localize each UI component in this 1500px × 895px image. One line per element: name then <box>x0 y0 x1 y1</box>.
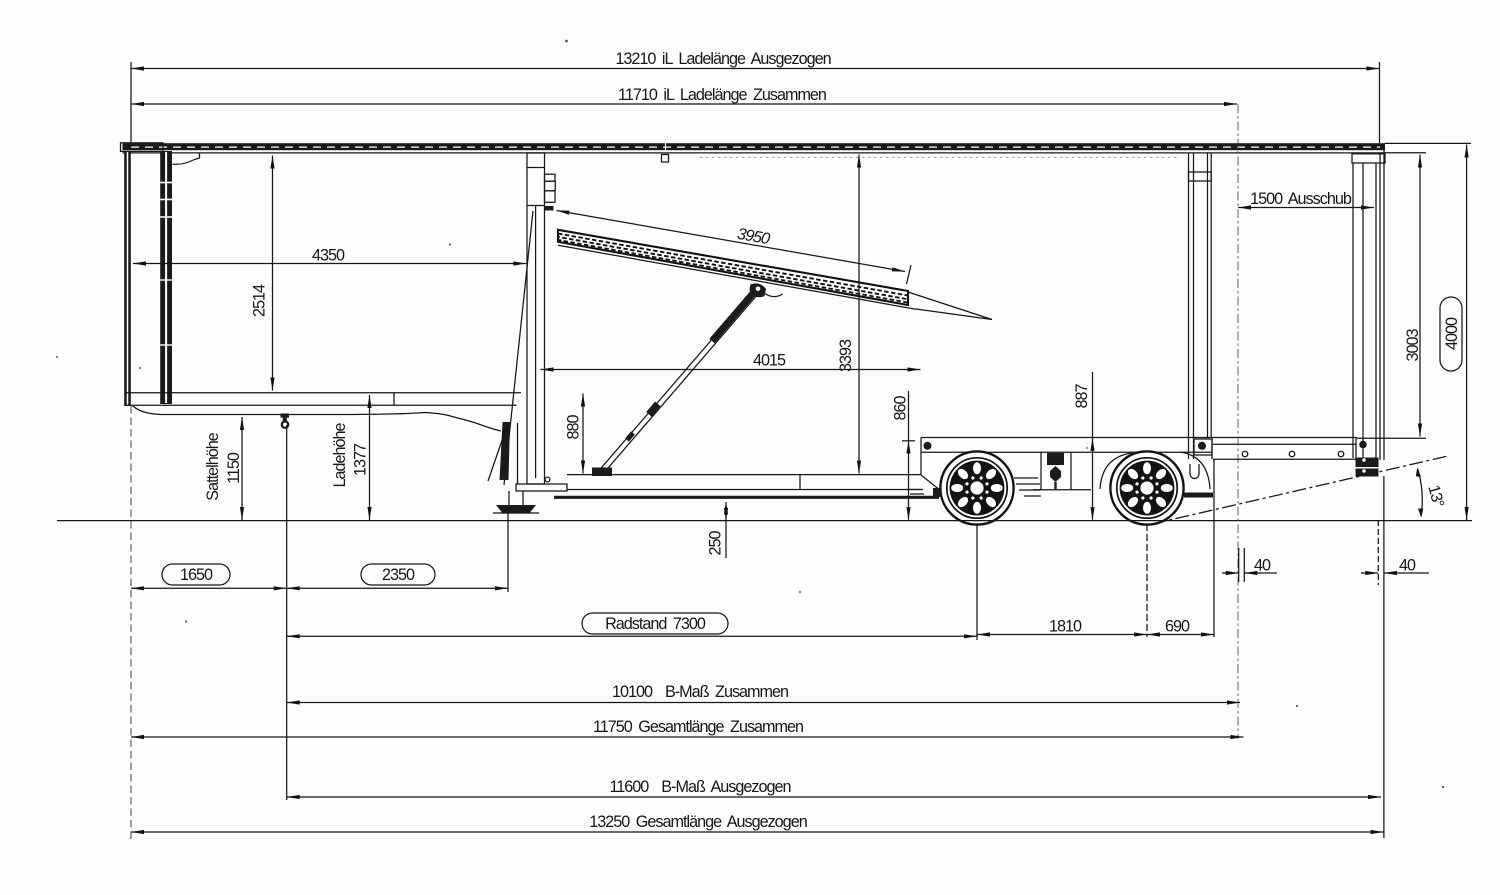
svg-text:1500 Ausschub: 1500 Ausschub <box>1250 190 1352 208</box>
svg-text:13250 Gesamtlänge Ausgezogen: 13250 Gesamtlänge Ausgezogen <box>589 813 806 831</box>
svg-text:13°: 13° <box>1424 483 1447 509</box>
svg-text:40: 40 <box>1254 557 1271 575</box>
svg-text:1150: 1150 <box>225 452 243 484</box>
svg-text:Sattelhöhe: Sattelhöhe <box>204 432 222 500</box>
svg-text:11710 iL Ladelänge Zusammen: 11710 iL Ladelänge Zusammen <box>618 86 826 104</box>
svg-text:4350: 4350 <box>312 247 345 265</box>
svg-text:4015: 4015 <box>753 352 786 370</box>
svg-text:3950: 3950 <box>736 225 772 248</box>
svg-text:11600 B-Maß Ausgezogen: 11600 B-Maß Ausgezogen <box>610 778 791 796</box>
svg-text:11750 Gesamtlänge Zusammen: 11750 Gesamtlänge Zusammen <box>593 718 803 736</box>
svg-text:1810: 1810 <box>1049 618 1082 636</box>
svg-text:880: 880 <box>565 415 583 440</box>
svg-text:Ladehöhe: Ladehöhe <box>331 422 349 487</box>
svg-text:250: 250 <box>707 531 725 556</box>
svg-text:1377: 1377 <box>352 443 370 476</box>
svg-text:4000: 4000 <box>1443 317 1461 350</box>
svg-text:887: 887 <box>1073 384 1091 409</box>
svg-text:2350: 2350 <box>382 566 415 584</box>
svg-text:860: 860 <box>892 396 910 421</box>
svg-text:3003: 3003 <box>1404 328 1422 361</box>
svg-text:2514: 2514 <box>251 284 269 317</box>
svg-text:10100 B-Maß Zusammen: 10100 B-Maß Zusammen <box>612 683 788 701</box>
svg-text:1650: 1650 <box>180 566 213 584</box>
svg-text:13210 iL Ladelänge Ausgezogen: 13210 iL Ladelänge Ausgezogen <box>615 50 830 68</box>
svg-text:690: 690 <box>1165 618 1190 636</box>
svg-text:Radstand 7300: Radstand 7300 <box>605 615 706 633</box>
svg-text:3393: 3393 <box>837 339 855 372</box>
svg-text:40: 40 <box>1399 557 1416 575</box>
